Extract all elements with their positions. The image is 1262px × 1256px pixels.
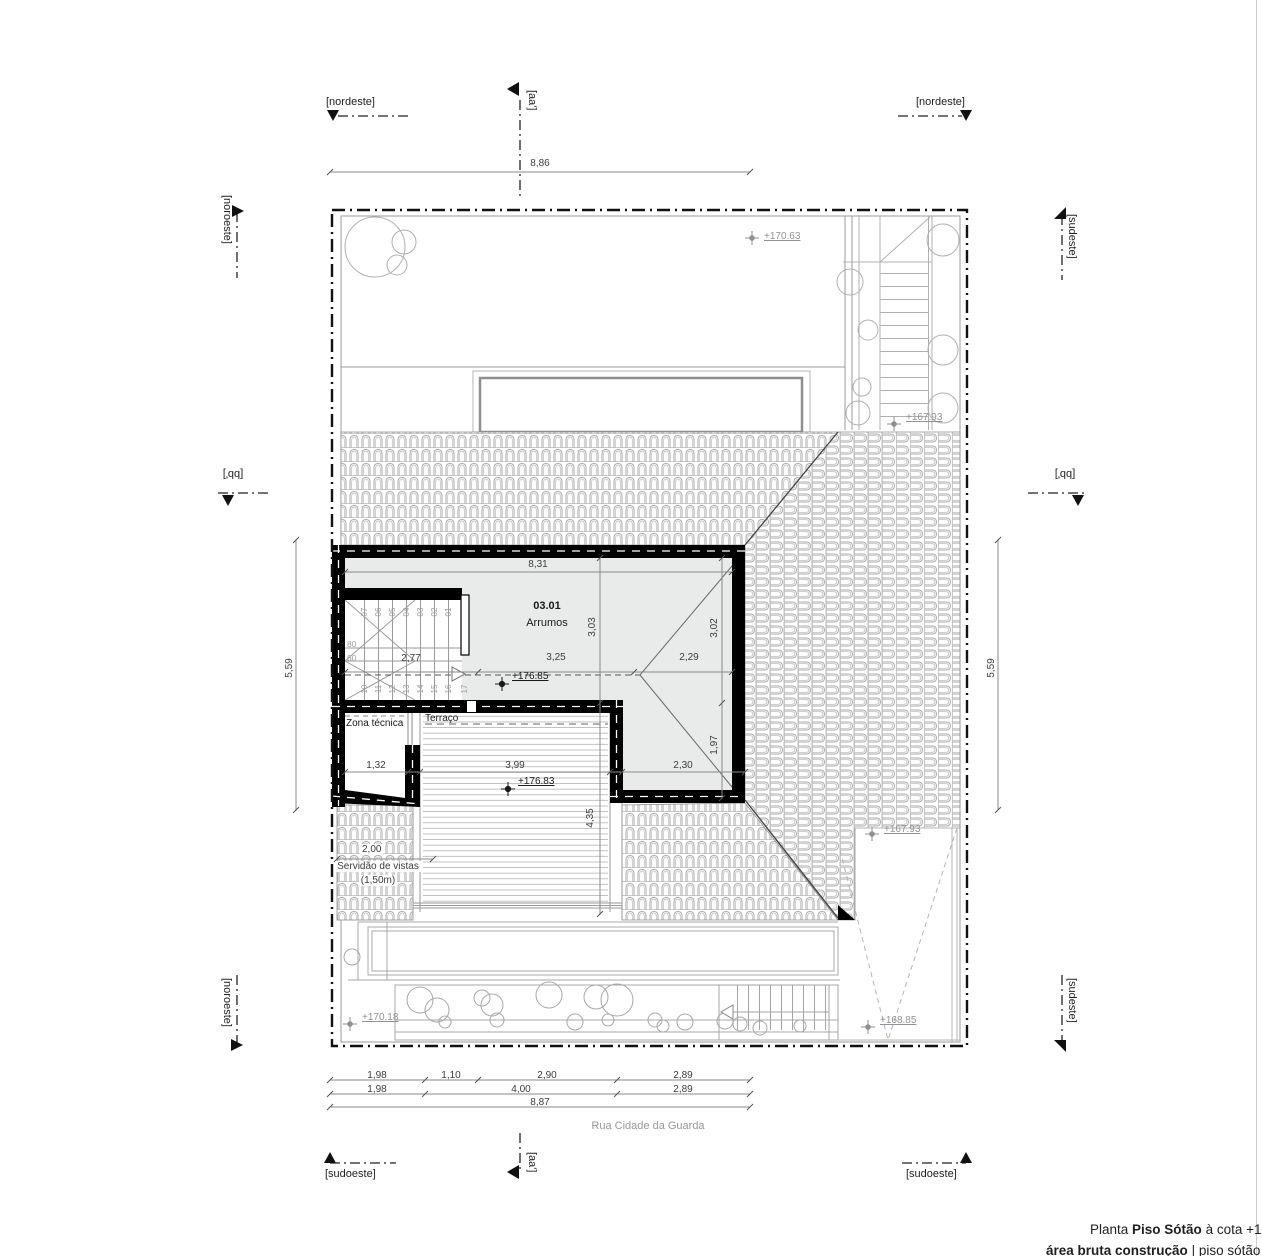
dim-side-right: 5,59 — [986, 648, 998, 688]
orientation-nordeste-right: [nordeste] — [916, 96, 965, 108]
level-garden-sw: +170.18 — [362, 1012, 398, 1024]
section-aa-top: [aa'] — [526, 90, 538, 110]
room-terrace-label: Terraço — [425, 713, 458, 725]
stair-num: 01 — [443, 602, 455, 622]
section-aa-bottom: [aa'] — [526, 1152, 538, 1172]
stair-num: 12 — [387, 679, 399, 699]
orientation-sudoeste-right: [sudoeste] — [906, 1168, 957, 1180]
orientation-sudeste-top: [sudeste] — [1066, 214, 1078, 259]
easement-label-line1: Servidão de vistas — [330, 861, 426, 873]
level-ramp-top: +167.93 — [884, 824, 920, 836]
level-attic: +176.85 — [512, 671, 548, 683]
orientation-noroeste-top: [noroeste] — [221, 195, 233, 244]
stair-num: 06 — [373, 602, 385, 622]
dim-bottom-1: 1,98 — [352, 1070, 402, 1082]
dim-right-width: 2,30 — [658, 760, 708, 772]
stair-width-80: 80 — [347, 638, 356, 650]
room-name: Arrumos — [507, 617, 587, 629]
stair-num: 05 — [387, 602, 399, 622]
street-name: Rua Cidade da Guarda — [548, 1120, 748, 1132]
ramp — [838, 828, 960, 1042]
dim-stair-width: 2,77 — [386, 653, 436, 665]
balcony-edge — [344, 922, 840, 980]
tree-icon — [345, 217, 416, 277]
section-bb-right: [bb'] — [1048, 468, 1082, 480]
dim-bottom-5: 1,98 — [352, 1084, 402, 1096]
level-terrace: +176.83 — [518, 776, 554, 788]
dim-room-width: 8,31 — [488, 559, 588, 571]
dim-bottom-7: 2,89 — [658, 1084, 708, 1096]
dim-room-h-right: 3,02 — [709, 608, 721, 648]
orientation-sudoeste-left: [sudoeste] — [325, 1168, 376, 1180]
section-bb-left: [bb'] — [216, 468, 250, 480]
orientation-sudeste-bottom: [sudeste] — [1066, 978, 1078, 1023]
orientation-noroeste-bottom: [noroeste] — [221, 978, 233, 1027]
dim-side-left: 5,59 — [284, 648, 296, 688]
dim-room-a: 3,25 — [531, 652, 581, 664]
plan-title: Planta Piso Sótão à cota +178 — [1090, 1222, 1262, 1237]
stair-num: 10 — [359, 679, 371, 699]
stair-num-last: 17 — [459, 679, 471, 699]
dim-terrace-height: 4,35 — [585, 798, 597, 838]
stair-num: 14 — [415, 679, 427, 699]
level-ramp-bottom: +168.85 — [880, 1015, 916, 1027]
dim-easement: 2,00 — [360, 844, 383, 856]
dim-terrace-width: 3,99 — [490, 760, 540, 772]
dim-room-b: 2,29 — [664, 652, 714, 664]
plan-area-note: área bruta construção | piso sótão = 03 — [1046, 1243, 1262, 1256]
stair-num: 04 — [401, 602, 413, 622]
room-tech-label: Zona técnica — [346, 718, 403, 730]
dim-room-h-left: 3,03 — [587, 607, 599, 647]
floor-plan-drawing — [0, 0, 1262, 1256]
dim-right-h: 1,97 — [709, 725, 721, 765]
stair-num: 15 — [429, 679, 441, 699]
dim-tech-width: 1,32 — [351, 760, 401, 772]
dim-bottom-3: 2,90 — [522, 1070, 572, 1082]
dim-bottom-2: 1,10 — [426, 1070, 476, 1082]
orientation-nordeste-left: [nordeste] — [326, 96, 375, 108]
stair-num: 11 — [373, 679, 385, 699]
courtyard-opening — [473, 371, 810, 432]
dim-bottom-6: 4,00 — [496, 1084, 546, 1096]
level-stair-ne: +167.93 — [906, 412, 942, 424]
exterior-stair-ne — [837, 216, 959, 430]
level-garden-ne: +170.63 — [764, 231, 800, 243]
dim-bottom-total: 8,87 — [515, 1097, 565, 1109]
stair-num: 03 — [415, 602, 427, 622]
easement-label-line2: (1,50m) — [330, 875, 426, 887]
dim-bottom-4: 2,89 — [658, 1070, 708, 1082]
room-number: 03.01 — [507, 600, 587, 612]
stair-num: 16 — [443, 679, 455, 699]
stair-num: 02 — [429, 602, 441, 622]
dim-top: 8,86 — [330, 158, 750, 170]
stair-num: 13 — [401, 679, 413, 699]
stair-num: 07 — [359, 602, 371, 622]
drawing-sheet: [nordeste] [nordeste] [aa'] [aa'] [noroe… — [0, 0, 1262, 1256]
stair-width-60: 60 — [347, 652, 356, 664]
